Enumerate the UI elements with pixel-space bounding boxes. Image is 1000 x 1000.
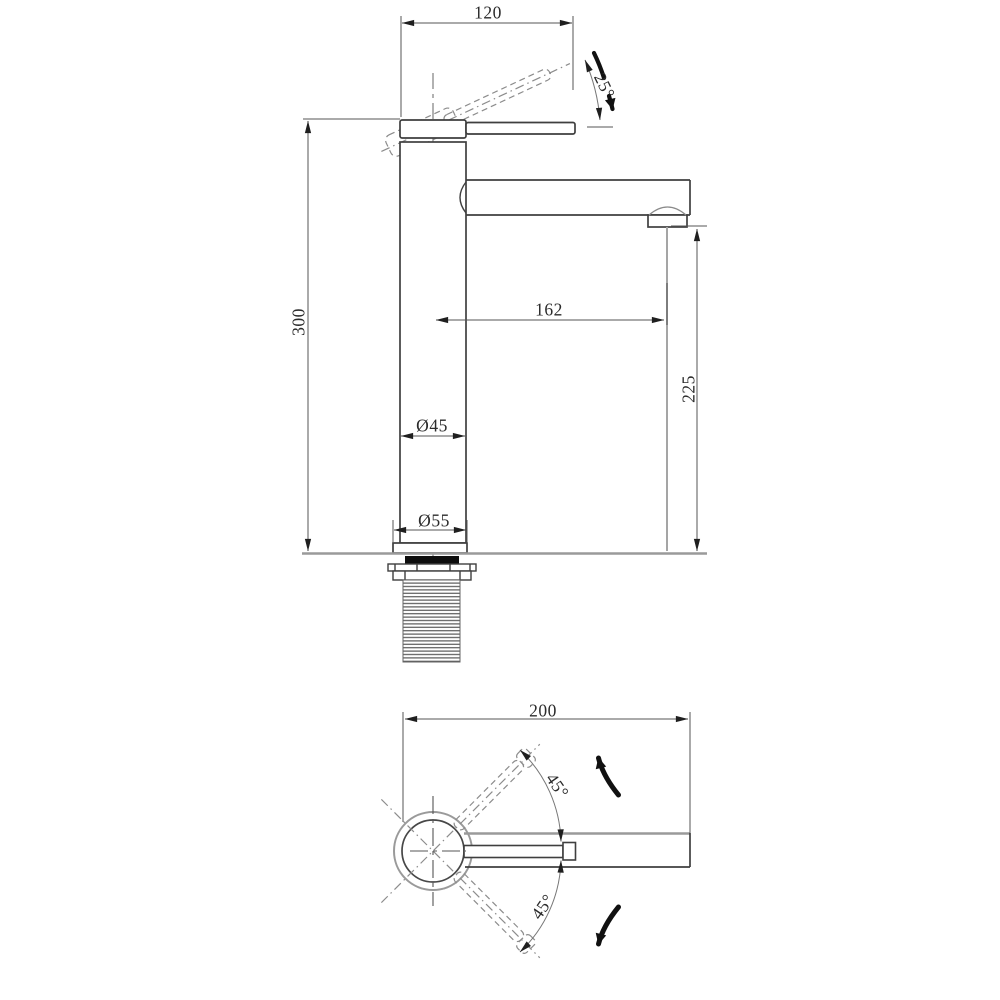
side-view [302,16,707,662]
dim-162-label: 162 [535,301,563,319]
handle-ghost-45-up [375,738,546,909]
side-view-dimensions [303,16,707,551]
dim-225-label: 225 [680,375,698,403]
threaded-shank [403,580,460,662]
plan-view [375,712,690,964]
mounting-washer [388,564,476,571]
plan-handle [464,843,576,861]
dim-300-label: 300 [290,308,308,336]
faucet-body [393,120,690,553]
dim-45dia-label: Ø45 [416,417,448,435]
aerator [648,215,687,227]
rotation-arrow-ccw-icon [599,758,619,795]
plan-handle-end-cap [563,843,576,861]
rotation-arrow-cw-icon [599,907,619,944]
mounting-hardware [388,556,476,662]
dim-120-label: 120 [474,4,502,22]
technical-drawing: 120 25° 300 162 225 Ø45 Ø55 200 45° 45° [0,0,1000,1000]
aerator-dome [649,207,686,215]
line-art [0,0,1000,1000]
column-body [400,142,466,543]
handle-ghost-45-down [375,793,546,964]
rubber-gasket [405,556,459,564]
base-flange [393,543,467,553]
cartridge-housing [400,120,466,138]
dim-55dia-label: Ø55 [418,512,450,530]
handle-lever [466,123,575,135]
dim-200-label: 200 [529,702,557,720]
